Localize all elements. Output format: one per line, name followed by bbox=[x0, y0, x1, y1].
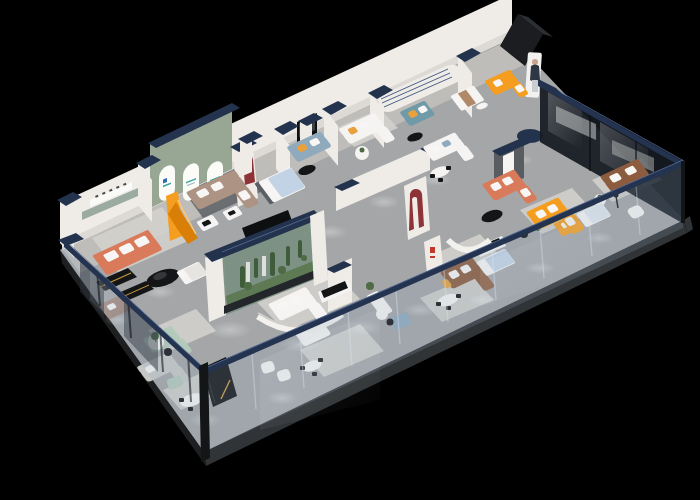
showroom-floorplan bbox=[0, 0, 700, 500]
corner-post bbox=[681, 161, 685, 223]
showroom-render-canvas bbox=[0, 0, 700, 500]
navy-round-platform bbox=[517, 129, 543, 143]
red-u-arch bbox=[404, 176, 430, 240]
